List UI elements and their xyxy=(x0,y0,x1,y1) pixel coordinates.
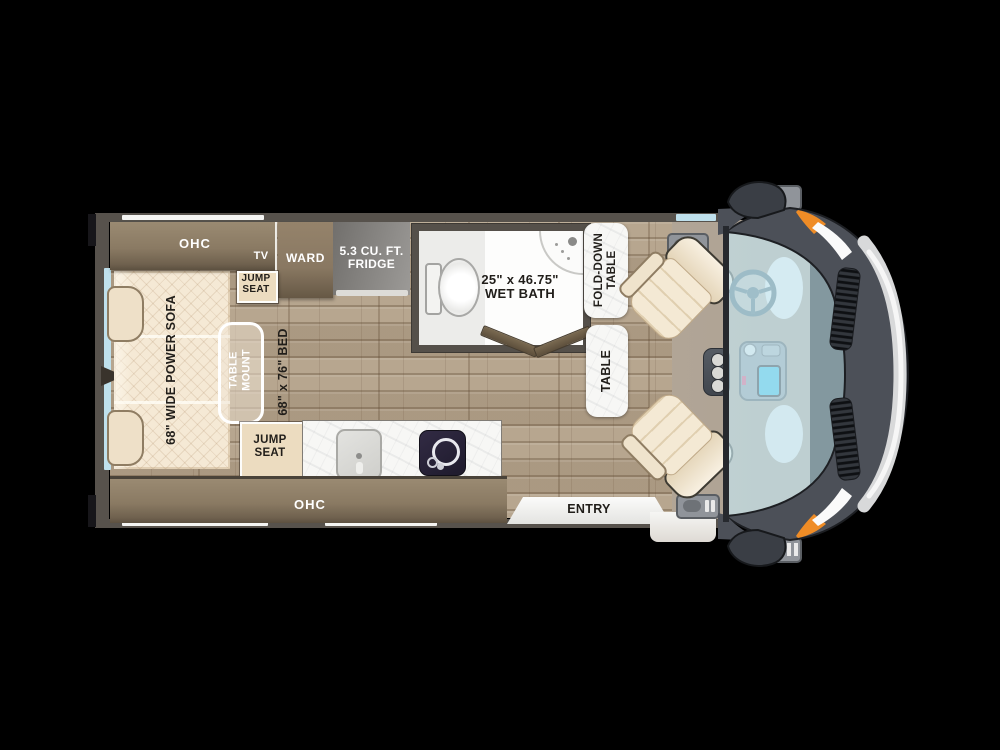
jump-seat-top-line2: SEAT xyxy=(236,284,276,295)
wet-bath-line1: 25" x 46.75" xyxy=(455,273,585,287)
rear-bumper-top xyxy=(88,214,96,246)
sofa-label: 68" WIDE POWER SOFA xyxy=(165,295,179,445)
jump-seat-bottom-line2: SEAT xyxy=(240,447,300,460)
side-mirror-bottom xyxy=(728,530,786,566)
sofa-armrest-top xyxy=(107,286,144,342)
shower-pan xyxy=(539,231,583,275)
fridge-label: 5.3 CU. FT. FRIDGE xyxy=(333,245,410,271)
fridge-label-line2: FRIDGE xyxy=(333,258,410,271)
rear-bumper-bottom xyxy=(88,495,96,527)
rv-floorplan: 68" WIDE POWER SOFA OHC TV WARD 5.3 CU. … xyxy=(0,0,1000,750)
kitchen-sink xyxy=(336,429,382,480)
wet-bath-line2: WET BATH xyxy=(455,287,585,301)
fold-down-line1: FOLD-DOWN xyxy=(593,233,606,307)
jump-seat-top-label: JUMP SEAT xyxy=(236,273,276,295)
table-mount-line1: TABLE xyxy=(227,349,240,391)
jump-seat-bottom-line1: JUMP xyxy=(240,434,300,447)
jump-seat-top-line1: JUMP xyxy=(236,273,276,284)
van-cab xyxy=(612,178,912,570)
window-top xyxy=(122,215,264,220)
ohc-top-label: OHC xyxy=(160,237,230,251)
tv-label: TV xyxy=(248,250,274,262)
sofa-armrest-bottom xyxy=(107,410,144,466)
wet-bath-label: 25" x 46.75" WET BATH xyxy=(455,273,585,302)
kitchen-counter xyxy=(302,420,502,479)
table-mount-line2: MOUNT xyxy=(240,349,253,391)
table-mount-label: TABLE MOUNT xyxy=(227,349,252,391)
fridge-sill xyxy=(336,290,408,296)
ward-label: WARD xyxy=(278,252,333,265)
side-mirror-top xyxy=(728,182,786,218)
bed-label: 68" x 76" BED xyxy=(277,328,291,415)
jump-seat-bottom-label: JUMP SEAT xyxy=(240,434,300,459)
induction-cooktop xyxy=(419,430,466,476)
ohc-bottom-label: OHC xyxy=(275,498,345,512)
